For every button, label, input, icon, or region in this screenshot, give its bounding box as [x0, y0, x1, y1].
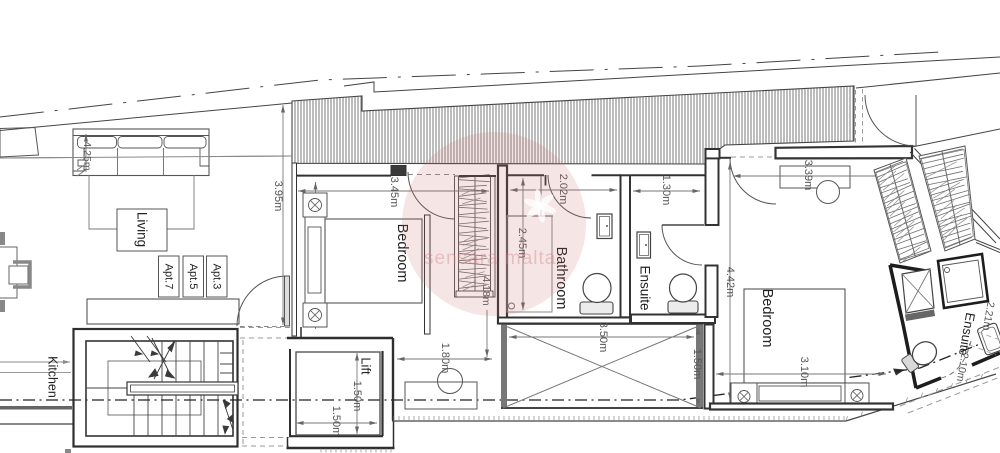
svg-text:3.50m: 3.50m	[597, 322, 609, 353]
svg-text:1.50m: 1.50m	[691, 349, 703, 380]
svg-text:4.25m: 4.25m	[81, 141, 93, 170]
svg-text:sensara malta: sensara malta	[424, 248, 556, 269]
svg-text:Apt.7: Apt.7	[163, 264, 175, 290]
svg-text:1.50m: 1.50m	[330, 406, 342, 437]
svg-text:3.45m: 3.45m	[388, 177, 400, 208]
svg-text:Living: Living	[134, 212, 149, 247]
svg-text:1.50m: 1.50m	[351, 381, 363, 412]
svg-text:1.30m: 1.30m	[660, 175, 672, 206]
svg-text:Apt.5: Apt.5	[187, 264, 199, 290]
svg-text:Kitchen: Kitchen	[46, 356, 60, 398]
svg-text:4.42m: 4.42m	[724, 267, 736, 298]
svg-text:3.95m: 3.95m	[272, 181, 284, 212]
svg-text:Lift: Lift	[359, 357, 374, 375]
svg-text:Bedroom: Bedroom	[759, 289, 775, 348]
svg-text:Ensuite: Ensuite	[637, 265, 652, 310]
svg-text:3.10m: 3.10m	[798, 357, 810, 388]
svg-text:3.39m: 3.39m	[802, 160, 814, 191]
svg-text:Apt.3: Apt.3	[211, 264, 223, 290]
